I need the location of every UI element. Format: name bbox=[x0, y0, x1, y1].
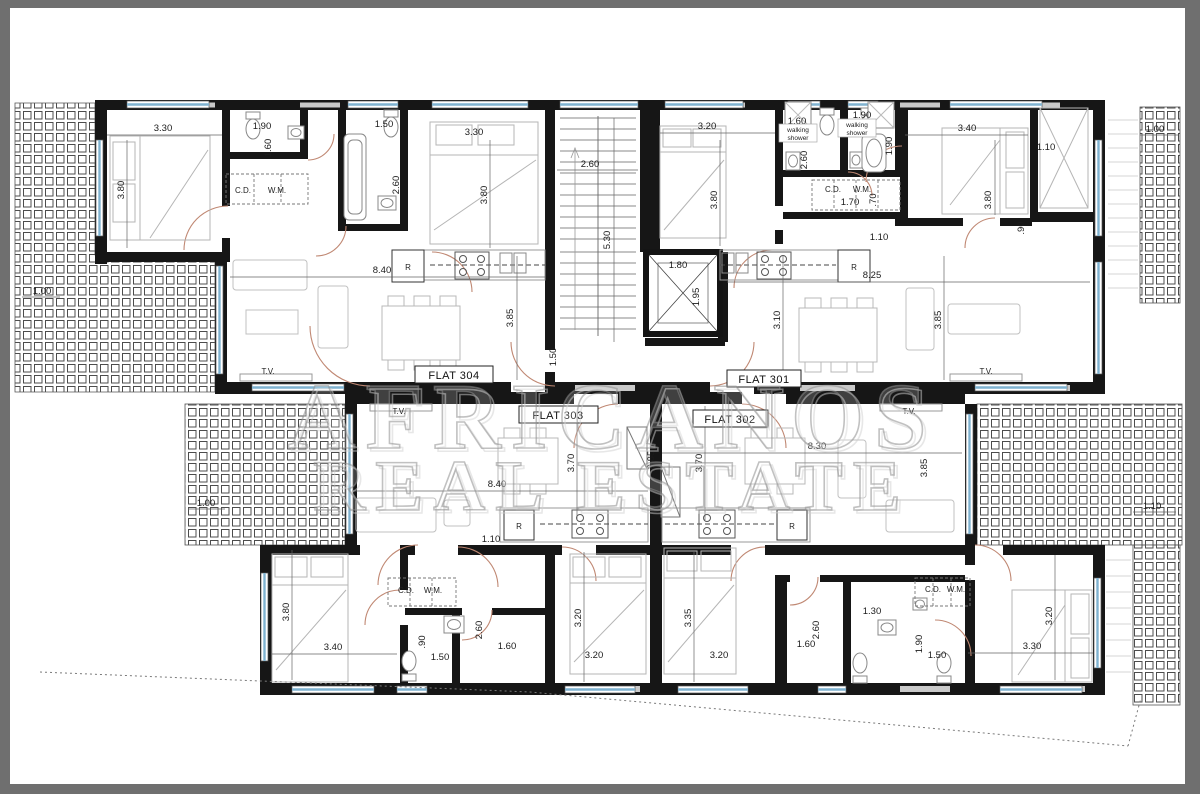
dim-label: 3.10 bbox=[772, 311, 783, 330]
walking-shower-tag: walking shower bbox=[838, 119, 876, 137]
dim-label: 3.40 bbox=[324, 642, 343, 653]
dim-label: 1.90 bbox=[884, 137, 895, 156]
dim-label: 1.50 bbox=[431, 652, 450, 663]
dim-label: 2.60 bbox=[799, 151, 810, 170]
dim-label: 3.35 bbox=[683, 609, 694, 628]
dim-label: 8.25 bbox=[863, 270, 882, 281]
balcony-right-bottom bbox=[1133, 545, 1180, 705]
floor-plan-drawing: 3.30 1.90 1.50 3.30 2.60 1.80 3.20 1.60 … bbox=[0, 0, 1200, 794]
dim-label: 1.50 bbox=[928, 650, 947, 661]
dim-label: 3.80 bbox=[983, 191, 994, 210]
dim-label: 8.40 bbox=[373, 265, 392, 276]
dim-label: 3.20 bbox=[1044, 607, 1055, 626]
walking-shower-label-line1: walking bbox=[786, 127, 809, 134]
walking-shower-label-line1: walking bbox=[845, 122, 868, 129]
closet-cd-label: C.D. bbox=[398, 586, 414, 595]
dim-label: 3.85 bbox=[933, 311, 944, 330]
dim-label: 1.70 bbox=[841, 197, 860, 208]
fridge-label: R bbox=[405, 263, 411, 272]
dim-label: 3.80 bbox=[281, 603, 292, 622]
dim-label: 2.60 bbox=[581, 159, 600, 170]
dim-label: 3.20 bbox=[573, 609, 584, 628]
dim-label: 1.60 bbox=[498, 641, 517, 652]
closet-cd-label: C.D. bbox=[925, 585, 941, 594]
dim-label: 3.40 bbox=[958, 123, 977, 134]
watermark: AFRICANOS REAL ESTATE AFRICANOS REAL EST… bbox=[288, 365, 940, 529]
closet-cd-label: C.D. bbox=[235, 186, 251, 195]
dim-label: 3.20 bbox=[710, 650, 729, 661]
closet-wm-label: W.M. bbox=[947, 585, 965, 594]
tv-label: T.V. bbox=[979, 367, 992, 376]
floor-plan-page: 3.30 1.90 1.50 3.30 2.60 1.80 3.20 1.60 … bbox=[0, 0, 1200, 794]
dim-label: 2.60 bbox=[391, 176, 402, 195]
watermark-line2: REAL ESTATE bbox=[313, 446, 911, 526]
walking-shower-label-line2: shower bbox=[847, 130, 869, 137]
dim-label: 3.20 bbox=[585, 650, 604, 661]
dim-label: 1.90 bbox=[253, 121, 272, 132]
dim-label: .70 bbox=[868, 193, 879, 206]
dim-label: 1.95 bbox=[691, 288, 702, 307]
balcony-right bbox=[977, 404, 1182, 545]
dim-label: 1.00 bbox=[197, 498, 216, 509]
dim-label: 3.20 bbox=[698, 121, 717, 132]
closet-wm-label: W.M. bbox=[853, 185, 871, 194]
dim-label: 1.00 bbox=[1146, 124, 1165, 135]
dim-label: 2.60 bbox=[474, 621, 485, 640]
dim-label: 3.80 bbox=[116, 181, 127, 200]
dim-label: 3.30 bbox=[154, 123, 173, 134]
tv-label: T.V. bbox=[261, 367, 274, 376]
closet-wm-label: W.M. bbox=[268, 186, 286, 195]
dim-label: 3.30 bbox=[1023, 641, 1042, 652]
dim-label: 1.60 bbox=[263, 139, 274, 158]
dim-label: .90 bbox=[1016, 221, 1027, 234]
dim-label: 2.60 bbox=[811, 621, 822, 640]
dim-label: 3.85 bbox=[505, 309, 516, 328]
dim-label: 1.30 bbox=[863, 606, 882, 617]
balcony-right-strip bbox=[1140, 107, 1180, 303]
dim-label: 1.10 bbox=[870, 232, 889, 243]
walking-shower-label-line2: shower bbox=[788, 135, 810, 142]
dim-label: 1.50 bbox=[548, 348, 559, 367]
dim-label: 5.30 bbox=[602, 231, 613, 250]
fridge-label: R bbox=[851, 263, 857, 272]
dim-label: 1.60 bbox=[797, 639, 816, 650]
dim-label: 1.10 bbox=[482, 534, 501, 545]
closet-wm-label: W.M. bbox=[424, 586, 442, 595]
walking-shower-tag: walking shower bbox=[779, 124, 817, 142]
dim-label: 1.10 bbox=[1143, 501, 1162, 512]
dim-label: 3.80 bbox=[479, 186, 490, 205]
dim-label: 3.30 bbox=[465, 127, 484, 138]
dim-label: .90 bbox=[417, 635, 428, 648]
dim-label: 1.50 bbox=[375, 119, 394, 130]
dim-label: 1.00 bbox=[33, 286, 52, 297]
dim-label: 3.80 bbox=[709, 191, 720, 210]
closet-cd-label: C.D. bbox=[825, 185, 841, 194]
dim-label: 1.80 bbox=[669, 260, 688, 271]
dim-label: 1.90 bbox=[914, 635, 925, 654]
dim-label: 1.10 bbox=[1037, 142, 1056, 153]
